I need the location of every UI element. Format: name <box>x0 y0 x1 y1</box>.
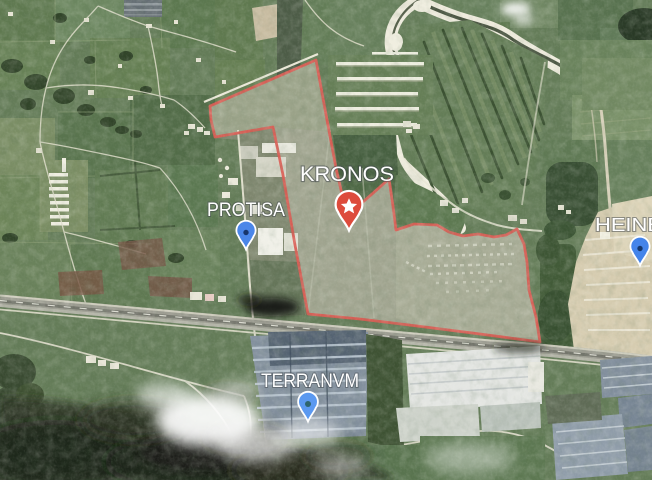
svg-text:KRONOS: KRONOS <box>300 162 394 186</box>
svg-text:TERRANVM: TERRANVM <box>261 370 359 392</box>
svg-text:HEINEKEN: HEINEKEN <box>595 214 652 235</box>
svg-text:PROTISA: PROTISA <box>207 199 285 221</box>
